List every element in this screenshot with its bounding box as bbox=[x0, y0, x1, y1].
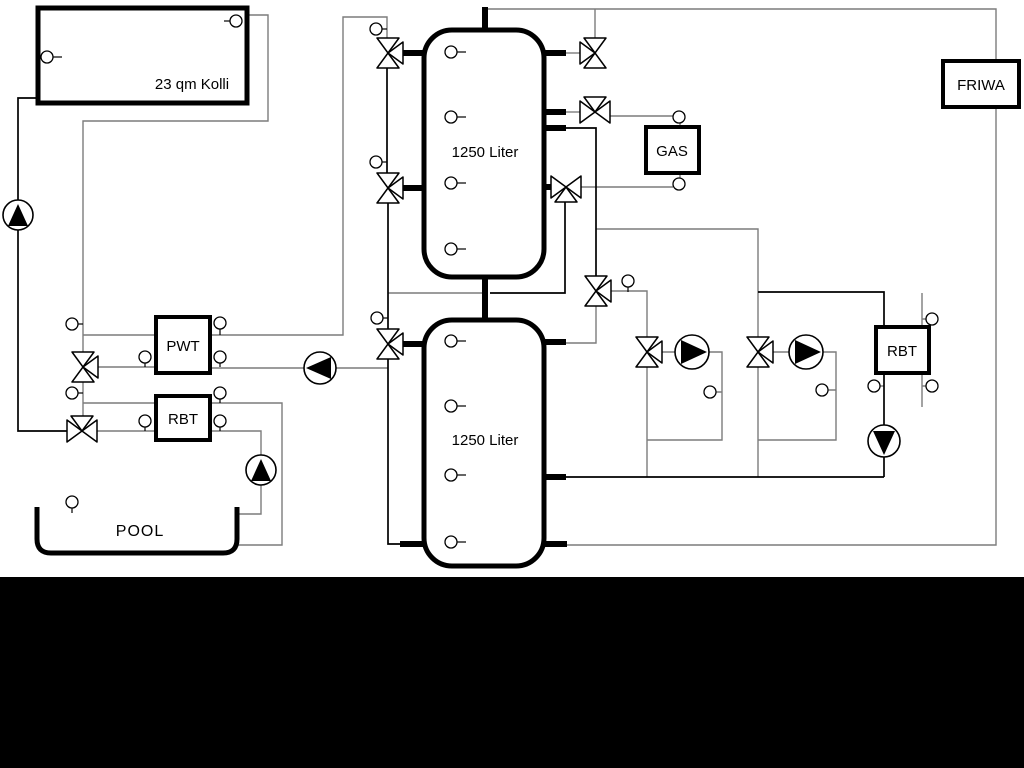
pool-label: POOL bbox=[116, 523, 164, 540]
valve-rbt-left-icon bbox=[67, 416, 97, 442]
sensor-rbt-left-in-icon bbox=[66, 387, 78, 399]
hydraulic-diagram: 23 qm Kolli 1250 Liter 1250 Liter GAS FR… bbox=[0, 0, 1024, 768]
sensor-mixer-outlet-icon bbox=[622, 275, 634, 287]
actuator-valve-bottom-icon bbox=[371, 312, 383, 324]
sensor-tank-top-3-icon bbox=[445, 177, 457, 189]
pool-pump-icon bbox=[246, 455, 276, 485]
heating-circuit-a-pump-icon bbox=[675, 335, 709, 369]
valve-circuit-a-icon bbox=[636, 337, 662, 367]
rbt-right-label: RBT bbox=[887, 343, 917, 360]
heating-circuit-b-pump-icon bbox=[789, 335, 823, 369]
sensor-circuit-a-icon bbox=[704, 386, 716, 398]
actuator-valve-top-2-icon bbox=[370, 156, 382, 168]
valve-circuit-b-icon bbox=[747, 337, 773, 367]
sensor-collector-2-icon bbox=[230, 15, 242, 27]
sensor-circuit-b-icon bbox=[816, 384, 828, 396]
sensor-gas-supply-icon bbox=[673, 111, 685, 123]
valve-gas-return-icon bbox=[551, 176, 581, 202]
pipe-valve-to-circuit-a bbox=[611, 291, 647, 338]
sensor-tank-top-4-icon bbox=[445, 243, 457, 255]
actuator-valve-top-1-icon bbox=[370, 23, 382, 35]
valve-tank-top-left-lower-icon bbox=[377, 173, 403, 203]
sensor-pool-icon bbox=[66, 496, 78, 508]
footer-black-band bbox=[0, 577, 1024, 768]
sensor-tank-bottom-4-icon bbox=[445, 536, 457, 548]
sensor-rbt-left-out-top-icon bbox=[214, 387, 226, 399]
sensor-tank-bottom-3-icon bbox=[445, 469, 457, 481]
collector-label: 23 qm Kolli bbox=[155, 76, 229, 93]
valve-tank-bottom-left-icon bbox=[377, 329, 403, 359]
sensor-rbt-left-mid-right-icon bbox=[214, 415, 226, 427]
solar-pump-icon bbox=[3, 200, 33, 230]
valve-pwt-icon bbox=[72, 352, 98, 382]
pipe-tank-left-chain-3 bbox=[388, 358, 424, 544]
rbt-right-pump-icon bbox=[868, 425, 900, 457]
pipe-valve-to-tank-stub bbox=[566, 306, 596, 343]
sensor-gas-return-icon bbox=[673, 178, 685, 190]
pipe-riser-to-circuit-b bbox=[596, 229, 758, 338]
sensor-pwt-mid-right-icon bbox=[214, 351, 226, 363]
pwt-secondary-pump-icon bbox=[304, 352, 336, 384]
sensor-rbt-right-return-icon bbox=[868, 380, 880, 392]
gas-label: GAS bbox=[656, 143, 688, 160]
sensor-tank-top-1-icon bbox=[445, 46, 457, 58]
sensor-pwt-out-top-icon bbox=[214, 317, 226, 329]
schematic-canvas: 23 qm Kolli 1250 Liter 1250 Liter GAS FR… bbox=[0, 0, 1024, 768]
tank-top-label: 1250 Liter bbox=[452, 144, 519, 161]
pipe-top-header-friwa bbox=[487, 9, 996, 545]
pipe-circuit-returns bbox=[647, 366, 758, 477]
valve-heating-mixer-icon bbox=[585, 276, 611, 306]
pwt-label: PWT bbox=[166, 338, 199, 355]
tank-bottom-label: 1250 Liter bbox=[452, 432, 519, 449]
sensor-rbt-left-mid-left-icon bbox=[139, 415, 151, 427]
sensor-pwt-mid-left-icon bbox=[139, 351, 151, 363]
friwa-label: FRIWA bbox=[957, 77, 1005, 94]
rbt-left-label: RBT bbox=[168, 411, 198, 428]
sensor-rbt-right-top-icon bbox=[926, 313, 938, 325]
sensor-rbt-right-bottom-icon bbox=[926, 380, 938, 392]
sensor-tank-bottom-2-icon bbox=[445, 400, 457, 412]
sensor-tank-bottom-1-icon bbox=[445, 335, 457, 347]
sensor-collector-1-icon bbox=[41, 51, 53, 63]
sensor-tank-top-2-icon bbox=[445, 111, 457, 123]
valve-tank-top-left-upper-icon bbox=[377, 38, 403, 68]
valve-gas-supply-icon bbox=[580, 97, 610, 123]
sensor-pwt-in-icon bbox=[66, 318, 78, 330]
valve-header-icon bbox=[580, 38, 606, 68]
pipe-solar-return bbox=[18, 98, 68, 431]
